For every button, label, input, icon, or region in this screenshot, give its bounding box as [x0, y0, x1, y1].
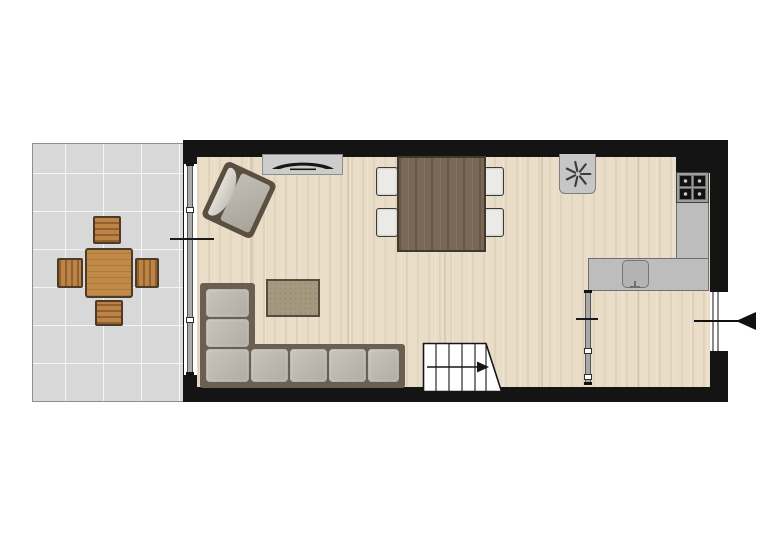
kitchen-counter-corner: [678, 260, 707, 289]
patio-sliding-door-glass: [187, 166, 193, 373]
sofa-cushion: [251, 349, 288, 382]
door-panel-joint: [186, 207, 194, 213]
dining-table: [397, 156, 486, 252]
door-panel-joint: [584, 348, 592, 354]
outdoor-table: [85, 248, 133, 298]
cooktop: [676, 172, 709, 203]
door-frame-cap: [584, 382, 592, 385]
outdoor-chair-west: [57, 258, 83, 288]
door-frame-cap: [186, 163, 194, 166]
sofa-cushion: [206, 319, 249, 347]
entrance-direction-arrow: [688, 306, 760, 336]
patio-door-section-marker: [170, 238, 214, 240]
door-frame-cap: [584, 290, 592, 293]
extractor-fan-icon: [563, 159, 593, 189]
sofa-cushion: [290, 349, 327, 382]
outdoor-chair-east: [135, 258, 159, 288]
staircase: [422, 342, 503, 393]
sofa-cushion: [206, 289, 249, 317]
tv-cabinet: [262, 154, 343, 175]
dining-chair: [376, 208, 398, 237]
cooktop-burner: [679, 188, 692, 200]
extractor-fan: [559, 154, 596, 194]
cooktop-burner: [693, 175, 706, 187]
outdoor-chair-south: [95, 300, 123, 326]
cooktop-burner: [679, 175, 692, 187]
door-frame-cap: [186, 372, 194, 375]
outdoor-chair-north: [93, 216, 121, 244]
floorplan-canvas: [0, 0, 780, 550]
door-panel-joint: [584, 374, 592, 380]
partition-section-marker: [576, 318, 598, 320]
faucet-icon: [630, 286, 640, 288]
sofa-cushion: [368, 349, 399, 382]
corner-sofa: [200, 283, 405, 388]
sofa-cushion: [329, 349, 366, 382]
cooktop-burner: [693, 188, 706, 200]
wall-section-top-right: [676, 157, 710, 173]
interior-glass-partition: [585, 292, 591, 385]
door-panel-joint: [186, 317, 194, 323]
dining-chair: [376, 167, 398, 196]
sofa-corner-cushion: [206, 349, 249, 382]
tv-screen-icon: [270, 159, 336, 171]
